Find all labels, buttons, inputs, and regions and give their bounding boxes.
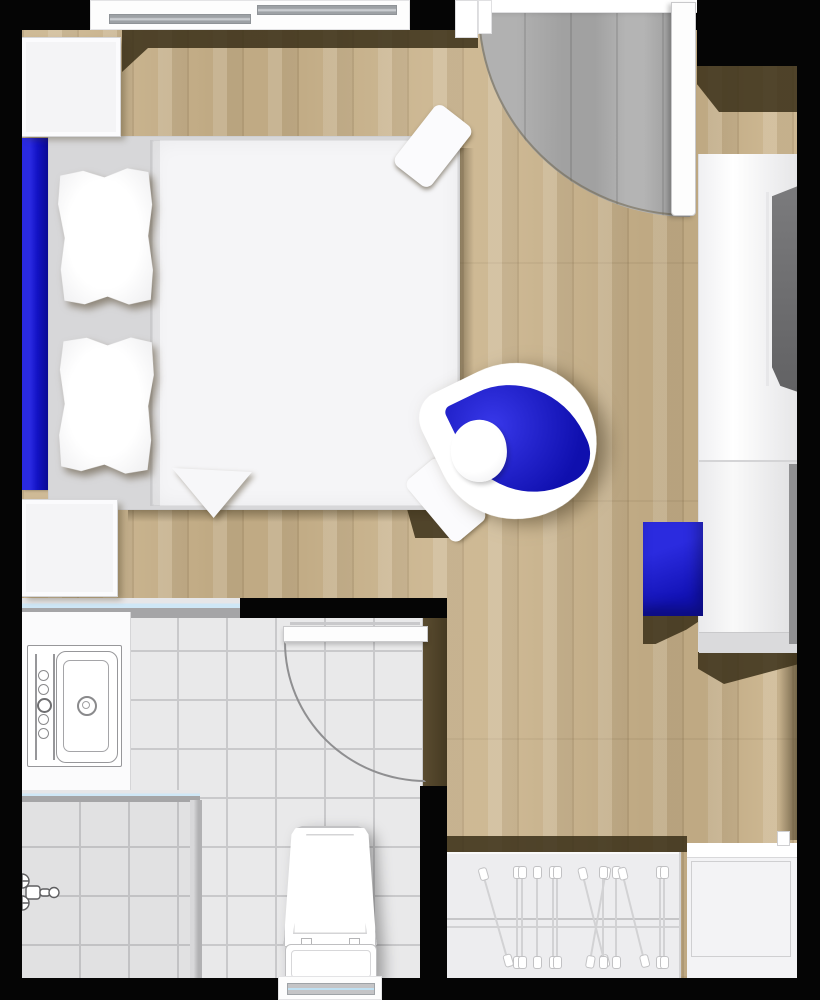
clothes-hanger-icon <box>514 860 530 972</box>
pillow <box>56 165 156 309</box>
wall-left <box>0 0 22 1000</box>
shower-glass-horizontal <box>22 790 200 802</box>
window-glass-blue-line <box>288 988 374 990</box>
bench-inner <box>691 861 791 957</box>
sink-knob <box>38 684 49 695</box>
toilet-lid <box>283 826 377 948</box>
toilet <box>283 826 379 982</box>
wall-right <box>797 0 820 1000</box>
pillow <box>56 333 156 477</box>
bathroom-door-track <box>290 622 420 625</box>
entry-jamb <box>478 0 492 34</box>
bed-headboard <box>22 138 48 490</box>
sink-drain <box>77 696 97 716</box>
blanket-fold <box>172 468 252 518</box>
top-wall-shadow <box>122 30 478 48</box>
wall-top-left <box>0 0 92 30</box>
bathroom-side-wall <box>423 618 447 788</box>
window-glass <box>109 14 251 24</box>
bed-mattress <box>152 140 458 506</box>
tv-groove <box>766 192 769 386</box>
desk-lower-tone <box>699 462 798 632</box>
window-glass <box>287 983 375 995</box>
bathroom-side-wall-lower <box>420 786 447 978</box>
clothes-hanger-icon <box>656 860 672 972</box>
entry-door-leaf <box>671 2 696 216</box>
bathroom-top-wall <box>240 598 447 618</box>
bench-luggage-rack <box>687 843 797 980</box>
bench-tab <box>777 831 790 846</box>
clothes-hanger-icon <box>529 860 545 972</box>
blue-ottoman <box>643 522 703 616</box>
sink-knob <box>38 714 49 725</box>
sink-unit <box>27 645 122 767</box>
wardrobe-closet <box>447 852 679 978</box>
entry-threshold <box>478 0 697 13</box>
tv <box>772 186 798 392</box>
closet-top-shadow <box>443 836 687 852</box>
wall-bottom <box>0 978 820 1000</box>
window-bottom <box>278 976 382 1000</box>
desk-front-edge <box>699 632 798 653</box>
window-top <box>90 0 410 30</box>
sink-basin <box>56 651 118 763</box>
window-glass <box>257 5 397 15</box>
sink-knob <box>38 670 49 681</box>
clothes-hanger-icon <box>549 860 565 972</box>
floor-plan <box>0 0 820 1000</box>
nightstand <box>22 38 120 136</box>
bathroom-door-leaf <box>283 626 428 642</box>
sink-knob <box>38 728 49 739</box>
corridor-right-shadow <box>779 652 797 840</box>
closet-divider <box>679 852 681 978</box>
armchair <box>428 354 604 528</box>
sink-knob <box>37 698 52 713</box>
entry-sill <box>455 0 478 38</box>
nightstand <box>22 500 117 596</box>
closet-hangers <box>447 854 679 980</box>
shower-glass-vertical <box>190 800 202 978</box>
